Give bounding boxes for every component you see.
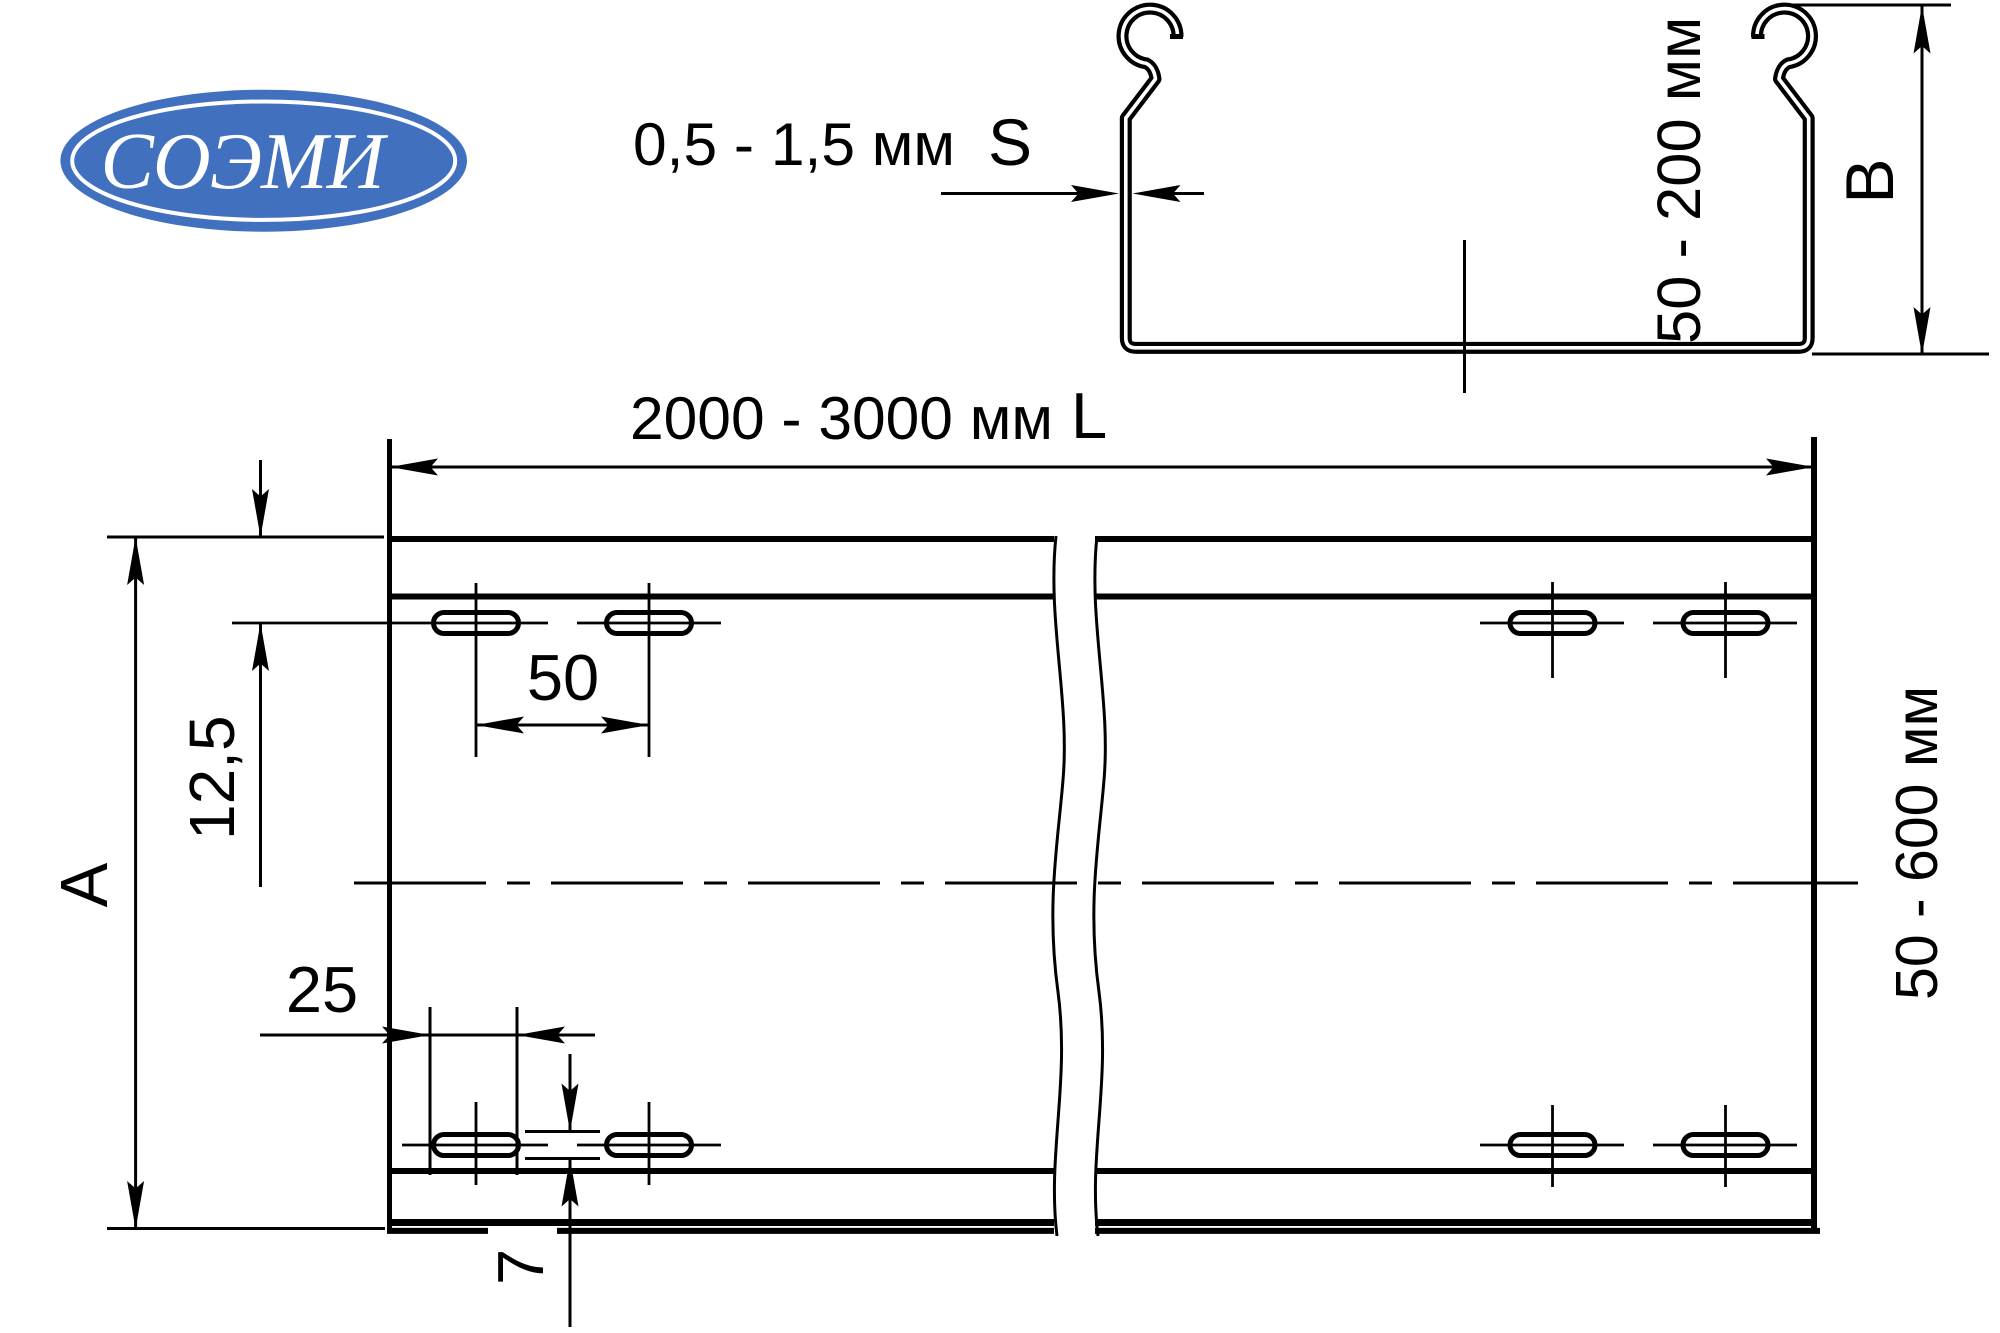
svg-text:50 - 200 мм: 50 - 200 мм (1645, 17, 1714, 344)
svg-text:СОЭМИ: СОЭМИ (101, 118, 389, 206)
svg-text:50 - 600 мм: 50 - 600 мм (1884, 686, 1950, 1000)
svg-text:25: 25 (286, 953, 358, 1026)
svg-text:7: 7 (484, 1249, 557, 1285)
svg-text:А: А (47, 862, 122, 907)
svg-text:0,5 - 1,5 мм: 0,5 - 1,5 мм (633, 110, 955, 178)
svg-text:12,5: 12,5 (176, 715, 248, 840)
svg-text:B: B (1832, 158, 1908, 203)
svg-text:L: L (1071, 379, 1107, 452)
svg-text:S: S (988, 105, 1032, 179)
svg-text:50: 50 (527, 641, 599, 714)
svg-text:2000 - 3000 мм: 2000 - 3000 мм (630, 384, 1053, 452)
